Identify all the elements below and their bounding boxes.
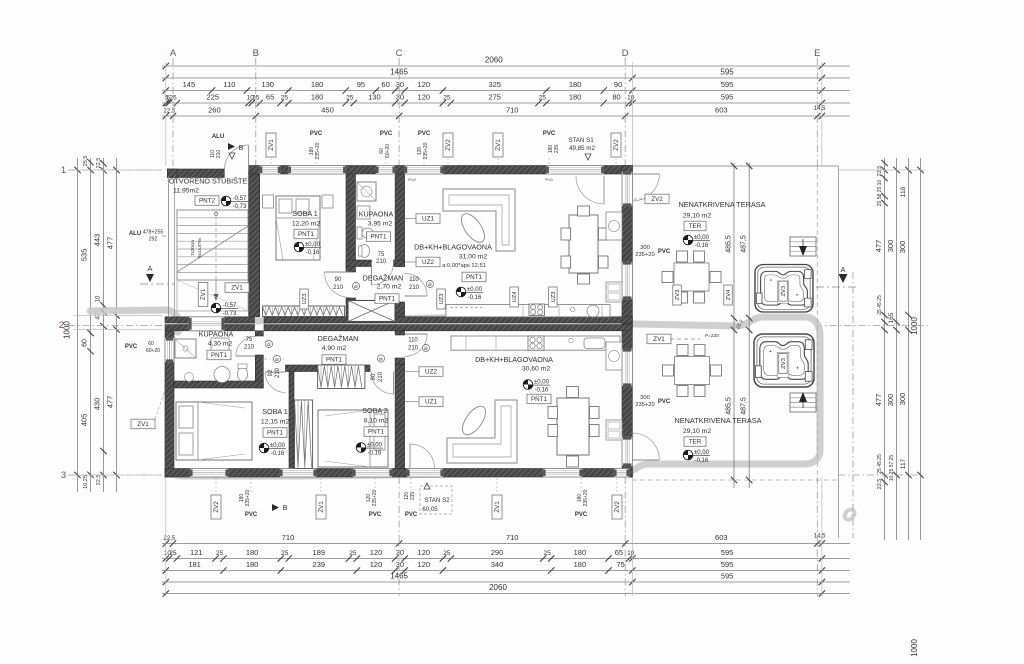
svg-text:235+20: 235+20 [583,489,589,506]
svg-text:DB+KH+BLAGOVAONA: DB+KH+BLAGOVAONA [414,243,492,252]
svg-text:25: 25 [544,550,552,557]
svg-text:PVC: PVC [125,344,138,350]
svg-text:-0,16: -0,16 [468,295,482,301]
svg-text:430: 430 [93,398,102,411]
svg-text:340: 340 [491,560,504,569]
svg-text:60: 60 [381,80,389,89]
svg-text:ZV1: ZV1 [200,288,207,300]
svg-text:2060: 2060 [489,583,507,592]
svg-text:STAN S1: STAN S1 [568,137,594,144]
svg-text:ZV1: ZV1 [137,421,149,428]
svg-text:25: 25 [281,550,289,557]
svg-text:535: 535 [80,249,89,262]
svg-text:8x14,8?m: 8x14,8?m [197,238,202,258]
svg-text:dr: dr [379,357,384,362]
svg-text:±0,00: ±0,00 [694,450,710,456]
svg-text:PNT1: PNT1 [379,296,396,303]
svg-text:PVC: PVC [543,131,556,137]
svg-text:22,5: 22,5 [96,475,102,486]
svg-text:235: 235 [554,145,560,154]
svg-text:E: E [814,48,820,59]
svg-text:PNT1: PNT1 [368,429,385,436]
svg-text:22,5: 22,5 [164,109,176,115]
svg-text:49,85 m2: 49,85 m2 [569,145,595,152]
svg-text:ZV2: ZV2 [213,501,220,513]
svg-text:ALU: ALU [212,134,224,140]
svg-text:117: 117 [900,458,907,469]
svg-text:UZ2: UZ2 [422,259,434,266]
svg-text:10,25: 10,25 [83,475,89,489]
svg-text:B: B [239,145,244,152]
svg-text:595: 595 [721,560,734,569]
svg-text:275: 275 [488,93,501,102]
svg-text:8,10 m2: 8,10 m2 [364,418,389,425]
svg-text:595: 595 [720,68,734,77]
svg-text:TER: TER [689,439,702,446]
svg-text:92: 92 [268,369,274,376]
svg-text:25: 25 [349,550,357,557]
svg-text:7x30cm: 7x30cm [190,240,195,256]
svg-text:-0,16: -0,16 [535,388,549,394]
svg-text:PVC: PVC [380,131,393,137]
svg-text:PVC: PVC [369,512,382,518]
svg-text:10: 10 [96,295,102,302]
svg-text:±0,00: ±0,00 [534,380,550,386]
svg-text:12,20 m2: 12,20 m2 [292,221,321,228]
svg-text:14,5: 14,5 [814,106,826,112]
svg-text:DB+KH+BLAGOVAONA: DB+KH+BLAGOVAONA [475,355,553,364]
svg-text:P=0: P=0 [408,177,416,182]
svg-text:PVC: PVC [245,512,258,518]
svg-text:4,30 m2: 4,30 m2 [208,341,233,348]
svg-text:ZV1: ZV1 [495,139,502,151]
svg-text:ZV1: ZV1 [318,501,325,513]
svg-text:D: D [622,48,629,59]
svg-text:477: 477 [874,240,883,253]
svg-text:1000: 1000 [910,639,919,657]
svg-text:UZ4: UZ4 [512,291,518,303]
svg-text:130: 130 [261,80,274,89]
svg-text:10: 10 [627,95,635,102]
svg-text:603: 603 [715,106,728,115]
svg-text:235+20: 235+20 [635,402,655,408]
svg-text:60+20: 60+20 [385,144,391,158]
svg-text:-0,16: -0,16 [306,250,320,256]
svg-text:110: 110 [409,277,419,283]
svg-text:PNT1: PNT1 [211,352,228,359]
svg-text:ALU: ALU [129,231,141,237]
svg-text:165: 165 [888,312,895,323]
svg-text:PNT1: PNT1 [267,430,284,437]
svg-text:710: 710 [506,106,519,115]
svg-text:210: 210 [216,150,222,159]
svg-text:22,5: 22,5 [877,479,883,490]
svg-text:75: 75 [246,337,253,343]
svg-text:121: 121 [190,548,203,557]
svg-text:30: 30 [396,560,404,569]
svg-text:NENATKRIVENA TERASA: NENATKRIVENA TERASA [679,200,766,209]
svg-text:SOBA 1: SOBA 1 [262,407,288,416]
svg-text:PNT1: PNT1 [326,357,343,364]
svg-text:300: 300 [640,245,650,251]
svg-text:PVC: PVC [310,131,323,137]
svg-text:75: 75 [616,560,624,569]
svg-text:235+20: 235+20 [245,489,251,506]
svg-text:ZV2: ZV2 [614,501,621,513]
svg-text:235+20: 235+20 [315,142,321,159]
svg-text:477: 477 [106,237,115,250]
svg-text:235+20: 235+20 [423,142,429,159]
svg-text:90: 90 [614,80,622,89]
svg-text:UZ3: UZ3 [439,294,445,305]
svg-text:405: 405 [80,414,89,427]
svg-text:P=0: P=0 [545,177,553,182]
svg-text:210: 210 [244,345,255,351]
svg-text:22,5: 22,5 [96,158,102,169]
svg-text:485,5: 485,5 [726,397,733,415]
svg-text:60: 60 [82,339,89,347]
svg-text:477: 477 [106,396,115,409]
svg-text:29,10 m2: 29,10 m2 [683,428,712,435]
svg-text:450: 450 [321,106,334,115]
svg-text:30,60 m2: 30,60 m2 [522,366,551,373]
svg-text:180: 180 [569,93,582,102]
svg-text:595: 595 [721,80,734,89]
svg-text:25,5: 25,5 [83,156,89,167]
svg-text:KUPAONA: KUPAONA [199,330,234,339]
svg-text:25: 25 [281,95,289,102]
svg-text:225: 225 [207,93,220,102]
svg-text:60+20: 60+20 [146,348,160,354]
svg-text:120: 120 [418,93,431,102]
svg-text:-0,16: -0,16 [271,451,285,457]
svg-text:710: 710 [282,533,295,542]
svg-text:180: 180 [569,80,582,89]
svg-text:239: 239 [313,560,326,569]
svg-text:189: 189 [313,548,326,557]
svg-text:KUPAONA: KUPAONA [359,210,394,219]
svg-text:31,00 m2: 31,00 m2 [459,254,488,261]
svg-text:ZV2: ZV2 [613,139,620,151]
svg-text:90: 90 [335,277,342,283]
svg-text:60,05: 60,05 [422,506,438,513]
svg-text:130: 130 [368,93,381,102]
svg-text:P=230: P=230 [705,333,719,339]
svg-text:595: 595 [721,93,734,102]
svg-text:90: 90 [371,373,377,380]
svg-text:210: 210 [275,367,281,378]
svg-text:181: 181 [188,560,201,569]
svg-text:PVC: PVC [658,399,671,405]
svg-text:1: 1 [61,165,66,176]
svg-text:dr: dr [354,284,359,289]
svg-text:B: B [253,48,259,59]
svg-text:478+255: 478+255 [143,230,164,236]
svg-text:3,95 m2: 3,95 m2 [368,221,393,228]
svg-text:180: 180 [574,548,587,557]
svg-text:ZV3: ZV3 [675,290,681,301]
svg-text:±0,00: ±0,00 [694,235,710,241]
svg-text:145: 145 [183,80,196,89]
svg-text:PNT1: PNT1 [370,234,387,241]
svg-text:65: 65 [615,548,623,557]
svg-text:292: 292 [149,237,158,243]
svg-text:300: 300 [886,394,895,407]
svg-text:-0,16: -0,16 [695,243,709,249]
svg-text:25: 25 [539,95,547,102]
svg-text:OTVORENO STUBIŠTE: OTVORENO STUBIŠTE [169,177,247,186]
svg-text:PVC: PVC [418,131,431,137]
svg-text:595: 595 [721,572,734,581]
svg-text:180: 180 [311,80,324,89]
svg-text:NENATKRIVENA TERASA: NENATKRIVENA TERASA [675,416,762,425]
svg-text:25 58 25 10: 25 58 25 10 [877,180,883,207]
svg-text:dr: dr [267,342,272,347]
svg-text:180: 180 [246,560,259,569]
svg-text:PVC: PVC [405,512,418,518]
svg-text:ZV1: ZV1 [494,501,501,513]
svg-text:180: 180 [574,560,587,569]
svg-text:STAN S2: STAN S2 [424,497,450,504]
svg-text:29,10 m2: 29,10 m2 [683,213,712,220]
svg-text:25: 25 [216,550,224,557]
svg-text:2,70 m2: 2,70 m2 [377,284,402,291]
svg-text:A: A [840,265,845,274]
svg-text:118: 118 [900,186,907,197]
svg-text:120: 120 [418,80,431,89]
svg-text:±0,00: ±0,00 [467,287,483,293]
svg-text:dr: dr [428,282,433,287]
svg-text:300: 300 [886,240,895,253]
svg-text:ZV3: ZV3 [781,358,787,369]
svg-text:300: 300 [898,241,907,254]
svg-text:3: 3 [61,470,66,481]
svg-text:25: 25 [443,95,451,102]
svg-text:PNT1: PNT1 [531,396,548,403]
svg-text:210: 210 [376,259,387,265]
svg-text:-0,57: -0,57 [223,303,237,309]
svg-text:60: 60 [148,341,154,347]
svg-text:80: 80 [612,93,620,102]
svg-text:25: 25 [346,95,354,102]
svg-text:95: 95 [357,80,365,89]
svg-text:-0,73: -0,73 [223,311,237,317]
svg-text:235: 235 [410,492,416,501]
svg-text:UZ1: UZ1 [425,399,437,406]
svg-text:PNT1: PNT1 [466,274,483,281]
svg-text:485,5: 485,5 [726,235,733,253]
svg-text:PVC: PVC [658,249,671,255]
svg-text:SOBA 1: SOBA 1 [292,209,318,218]
svg-text:-0,73: -0,73 [233,204,247,210]
svg-text:ZV2: ZV2 [651,196,663,203]
svg-text:±0,00: ±0,00 [367,443,383,449]
svg-text:-0,57: -0,57 [233,196,247,202]
svg-text:UZ2: UZ2 [425,369,437,376]
svg-text:11,95m2: 11,95m2 [173,188,199,195]
svg-text:ZV1: ZV1 [268,139,275,151]
svg-text:210: 210 [408,346,419,352]
svg-text:ZV1: ZV1 [231,285,243,292]
svg-text:595: 595 [721,548,734,557]
svg-text:TER: TER [689,223,702,230]
svg-text:UZ1: UZ1 [422,216,434,223]
svg-text:260: 260 [208,106,221,115]
svg-text:65: 65 [266,93,274,102]
svg-text:B: B [283,505,288,512]
svg-text:180: 180 [246,548,259,557]
svg-text:210: 210 [333,285,344,291]
svg-text:120: 120 [418,548,431,557]
svg-text:PVC: PVC [575,512,588,518]
svg-text:180: 180 [311,93,324,102]
svg-text:UZ3: UZ3 [551,292,557,303]
svg-text:ZV4: ZV4 [726,289,732,300]
svg-text:110: 110 [408,338,418,344]
svg-text:210: 210 [409,285,420,291]
svg-text:75: 75 [378,252,385,258]
svg-text:10 25 57 25: 10 25 57 25 [889,455,895,482]
svg-text:30: 30 [396,80,404,89]
svg-text:ZV3: ZV3 [781,286,787,297]
svg-text:DEGAŽMAN: DEGAŽMAN [363,274,404,283]
svg-text:25 45 25: 25 45 25 [877,295,883,315]
svg-text:210: 210 [378,371,384,382]
svg-text:120: 120 [418,560,431,569]
svg-text:ZV2: ZV2 [445,139,452,151]
svg-text:ZV1: ZV1 [653,336,665,343]
svg-text:PNT2: PNT2 [199,198,216,205]
svg-text:4,90 m2: 4,90 m2 [322,345,347,352]
svg-text:A: A [147,264,152,273]
svg-text:110: 110 [224,80,236,89]
svg-text:325: 325 [488,80,501,89]
svg-text:120: 120 [370,560,383,569]
svg-text:235+20: 235+20 [635,252,655,258]
svg-text:C: C [396,48,403,59]
svg-text:120: 120 [370,548,383,557]
svg-text:710: 710 [506,533,519,542]
svg-text:±0,00: ±0,00 [305,242,321,248]
svg-text:±0,00: ±0,00 [270,443,286,449]
svg-text:443: 443 [93,234,102,247]
svg-text:14,5: 14,5 [814,534,826,540]
svg-text:2: 2 [59,320,64,331]
svg-text:487,5: 487,5 [741,235,748,253]
svg-text:477: 477 [874,394,883,407]
svg-text:dr: dr [424,346,429,351]
svg-text:10: 10 [627,550,635,557]
svg-text:A: A [170,48,177,59]
svg-text:a:0,00*aps 12,51: a:0,00*aps 12,51 [442,263,486,269]
svg-text:dr: dr [275,357,280,362]
svg-text:487,5: 487,5 [741,397,748,415]
svg-text:300: 300 [898,393,907,406]
svg-text:30: 30 [396,93,404,102]
svg-text:603: 603 [715,533,728,542]
svg-text:UZ3: UZ3 [302,294,308,305]
svg-text:25: 25 [169,550,177,557]
svg-text:DEGAŽMAN: DEGAŽMAN [318,334,359,343]
svg-text:12,15 m2: 12,15 m2 [261,419,290,426]
svg-text:300: 300 [640,395,650,401]
svg-text:-0,16: -0,16 [368,451,382,457]
svg-text:22,5: 22,5 [164,536,176,542]
svg-text:PNT1: PNT1 [298,231,315,238]
svg-text:25 45 25: 25 45 25 [877,454,883,474]
svg-text:-0,16: -0,16 [695,458,709,464]
svg-text:22,5: 22,5 [877,166,883,177]
svg-text:30: 30 [396,548,404,557]
svg-text:25: 25 [443,550,451,557]
svg-text:290: 290 [491,548,504,557]
svg-text:SOBA 2: SOBA 2 [362,406,388,415]
svg-text:2060: 2060 [485,56,503,65]
